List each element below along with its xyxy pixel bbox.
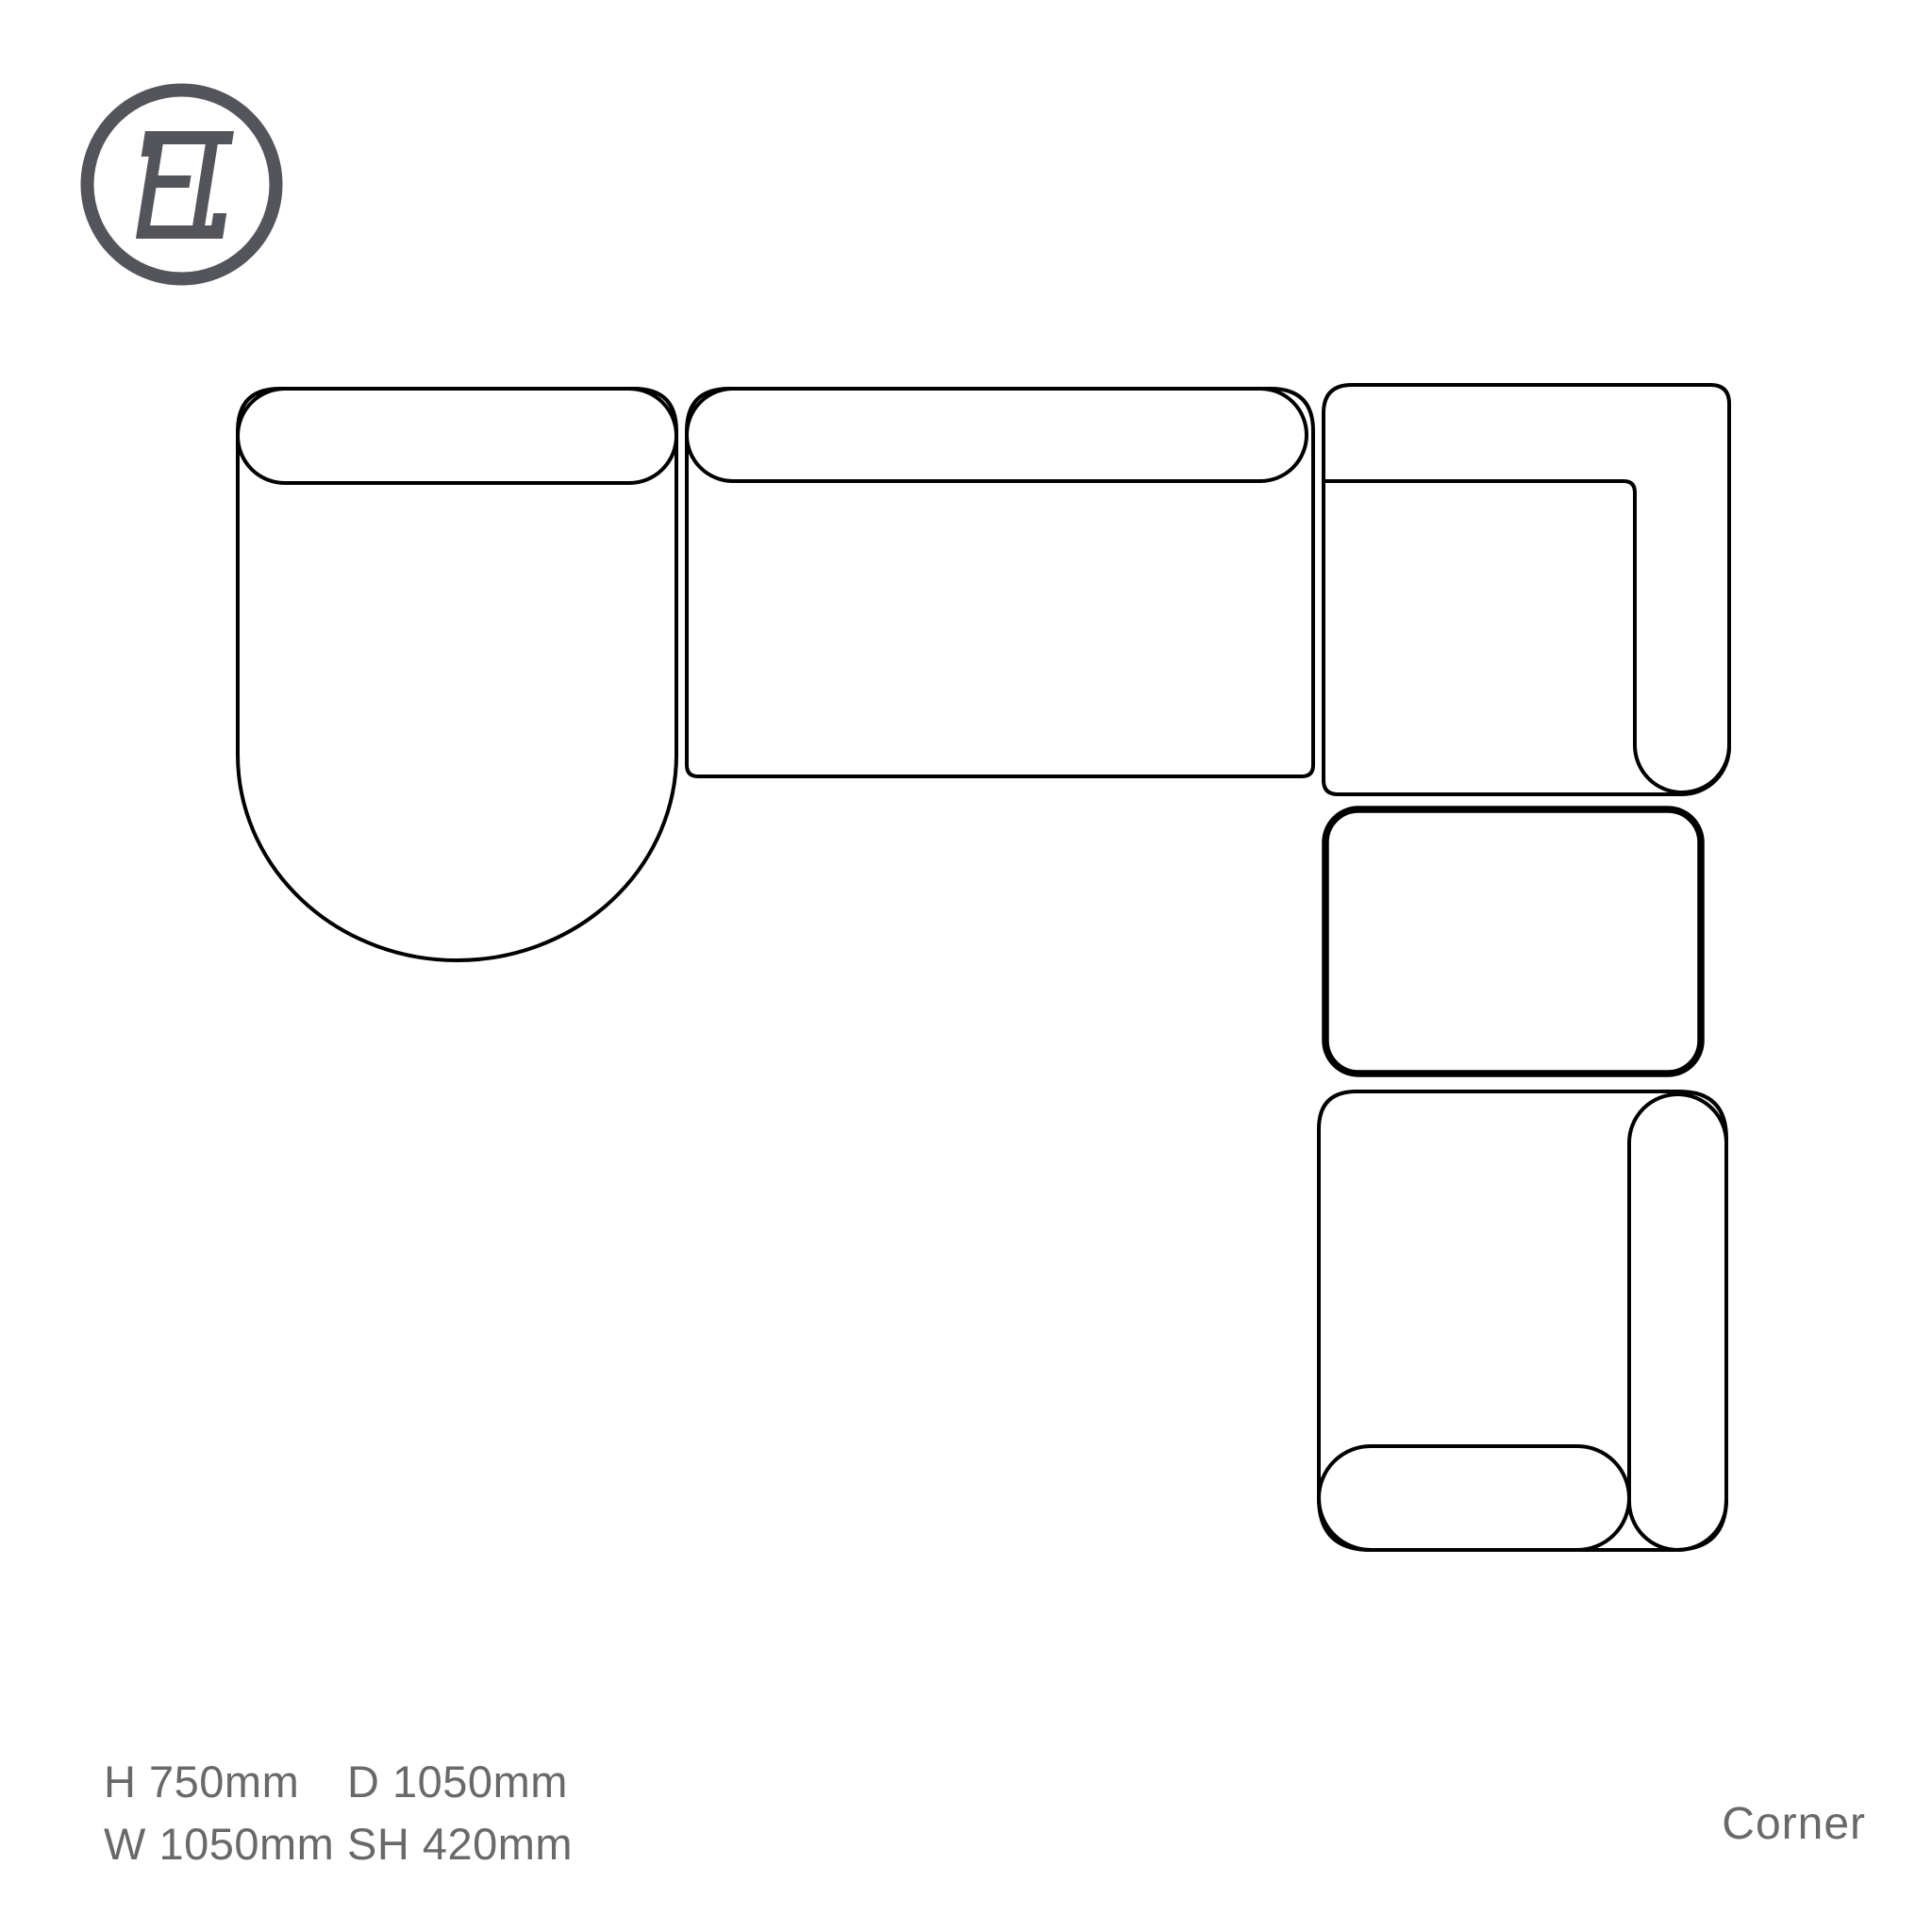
- seat-body-outline: [687, 389, 1313, 776]
- arm-end-back-cushion: [1629, 1094, 1726, 1550]
- corner-inner-back-line: [1324, 481, 1729, 792]
- spec-width-value: 1050mm: [158, 1819, 334, 1869]
- spec-depth-label: D: [347, 1757, 379, 1807]
- spec-width-label: W: [104, 1819, 146, 1869]
- module-armless-seat: [687, 389, 1313, 776]
- spec-seat-height-value: 420mm: [423, 1819, 573, 1869]
- spec-height: H 750mm: [104, 1751, 347, 1813]
- chaise-back-cushion: [238, 389, 676, 483]
- product-title: Corner: [1722, 1800, 1866, 1849]
- module-chaise-end: [238, 389, 676, 960]
- spec-depth: D 1050mm: [347, 1751, 573, 1813]
- spec-seat-height-label: SH: [347, 1819, 409, 1869]
- spec-depth-value: 1050mm: [392, 1757, 568, 1807]
- highlighted-module-outline: [1325, 809, 1701, 1074]
- chaise-body-outline: [238, 389, 676, 960]
- spec-sheet-page: H 750mm W 1050mm D 1050mm SH 420mm Corne…: [0, 0, 1932, 1932]
- corner-outer-outline: [1324, 385, 1729, 794]
- module-highlighted: [1325, 809, 1701, 1074]
- spec-width: W 1050mm: [104, 1813, 347, 1875]
- spec-height-value: 750mm: [149, 1757, 299, 1807]
- sofa-plan-diagram: [0, 0, 1932, 1932]
- brand-logo-icon: [88, 91, 276, 279]
- arm-end-arm-cushion: [1319, 1446, 1629, 1550]
- logo-monogram-fi: [128, 131, 240, 239]
- dimension-specs: H 750mm W 1050mm D 1050mm SH 420mm: [104, 1751, 573, 1875]
- module-corner-back: [1324, 385, 1729, 794]
- arm-end-outer-outline: [1319, 1091, 1726, 1550]
- module-arm-end: [1319, 1091, 1726, 1550]
- seat-back-cushion: [687, 389, 1307, 481]
- spec-seat-height: SH 420mm: [347, 1813, 573, 1875]
- spec-height-label: H: [104, 1757, 136, 1807]
